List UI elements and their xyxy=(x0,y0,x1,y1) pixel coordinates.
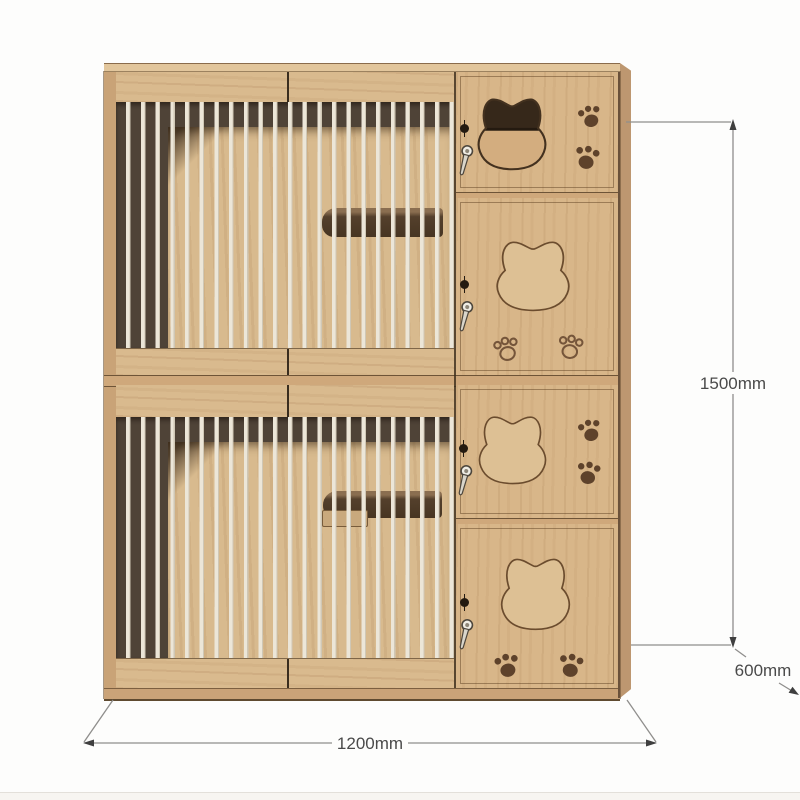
product-diagram-canvas: 1500mm 600mm 1200mm xyxy=(0,0,800,800)
lower-slat-bars xyxy=(116,417,454,658)
cat-head-engraving-c xyxy=(471,411,554,489)
upper-door-split xyxy=(287,72,289,102)
knob-icon xyxy=(460,280,469,289)
upper-cage-window xyxy=(116,102,454,348)
latch-icon xyxy=(458,144,476,178)
upper-cage-top-rail xyxy=(116,72,454,103)
knob-icon xyxy=(459,444,468,453)
cat-head-engraving-b xyxy=(488,236,578,316)
front-right-edge xyxy=(618,72,620,698)
lower-cage-bottom-rail xyxy=(116,658,454,690)
cat-hole-opening-a xyxy=(470,93,554,175)
upper-cage-bottom-rail xyxy=(116,348,454,377)
paw-print-icon xyxy=(572,456,605,489)
lower-door-split xyxy=(287,385,289,417)
base-strip xyxy=(104,688,620,701)
latch-icon xyxy=(458,618,476,652)
lower-door-split-bottom xyxy=(287,659,289,689)
paw-print-icon xyxy=(490,648,525,683)
knob-icon xyxy=(460,124,469,133)
paw-print-outline-icon xyxy=(554,330,587,363)
lower-cage-top-rail xyxy=(116,385,454,418)
paw-print-icon xyxy=(570,140,605,175)
cat-cage-cabinet xyxy=(0,0,800,800)
upper-slat-bars xyxy=(116,102,454,348)
cabinet-side-panel xyxy=(620,63,631,698)
cat-head-engraving-d xyxy=(493,553,578,635)
upper-door-split-bottom xyxy=(287,349,289,376)
latch-icon xyxy=(458,300,476,334)
floor-line xyxy=(0,792,800,800)
knob-icon xyxy=(460,598,469,607)
latch-icon xyxy=(457,464,475,498)
lower-cage-window xyxy=(116,417,454,658)
paw-print-outline-icon xyxy=(489,331,523,365)
paw-print-icon xyxy=(554,648,588,682)
